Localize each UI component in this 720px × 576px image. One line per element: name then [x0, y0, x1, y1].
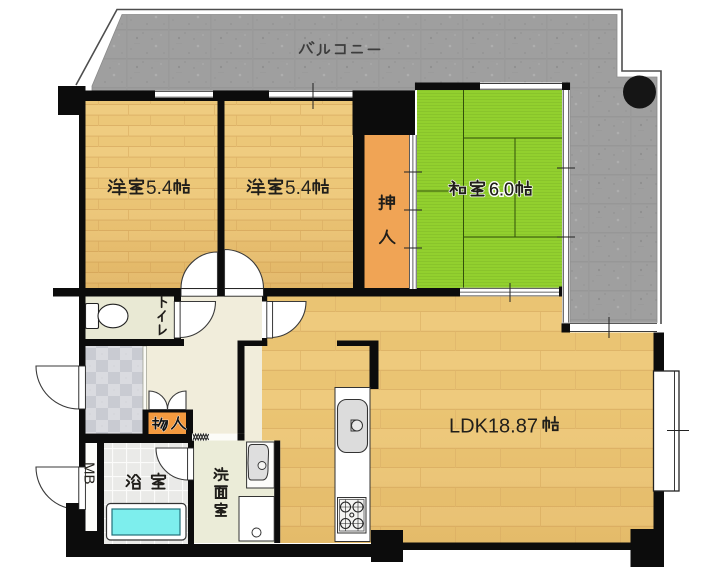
svg-text:5.4: 5.4 — [285, 178, 312, 199]
svg-text:LDK18.87: LDK18.87 — [449, 416, 538, 438]
svg-text:6.0: 6.0 — [489, 180, 514, 200]
svg-text:MB: MB — [81, 462, 98, 485]
svg-text:5.4: 5.4 — [146, 178, 173, 199]
